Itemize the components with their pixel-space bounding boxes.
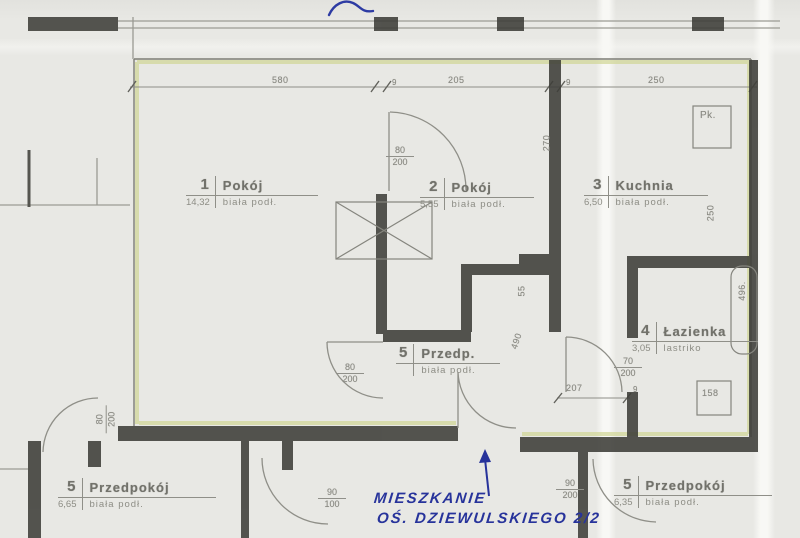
dim-158: 158 [702,388,719,398]
dim-door-hall-width: 80 [336,362,364,373]
kitchen-floor: biała podł. [609,196,709,208]
dim-door-bottom-mid-width: 90 [318,487,346,498]
bathroom-floor: lastriko [657,342,759,354]
dim-496: 496. [737,281,747,301]
kitchen-number: 3 [584,176,609,196]
dim-door-bath: 70 200 [614,356,642,379]
hall-number: 5 [396,344,414,364]
dim-207: 207 [566,383,583,393]
dim-door-left-width: 80 [95,405,106,433]
dim-tick-9b: 9 [566,78,571,87]
dim-door-bottom-mid-height: 100 [318,498,346,510]
dim-270: 270 [541,135,551,152]
room1-number: 1 [186,176,216,196]
annotation-arrow [479,449,491,496]
dim-door-hall: 80 200 [336,362,364,385]
dim-door-bottom-right-width: 90 [556,478,584,489]
pen-scribble [329,2,373,15]
floorplan-linework [0,0,800,538]
dim-door-room2: 80 200 [386,145,414,168]
dim-tick-9c: 9 [633,385,638,394]
dim-door-left: 80 200 [95,405,118,433]
kitchen-name: Kuchnia [609,176,709,196]
bathroom-area: 3,05 [632,342,657,354]
dim-55: 55 [517,285,527,296]
door-arcs [43,112,656,524]
dim-door-bottom-right-height: 200 [556,489,584,501]
dim-250-top: 250 [648,75,665,85]
dim-door-bottom-right: 90 200 [556,478,584,501]
dim-door-bath-width: 70 [614,356,642,367]
neighbor-right-area: 6,35 [614,496,639,508]
pantry-label: Pk. [700,110,716,121]
bathroom-number: 4 [632,322,657,342]
dim-door-hall-height: 200 [336,373,364,385]
bathroom-name: Łazienka [657,322,759,342]
bath-fixture-box [697,381,731,415]
neighbor-left-number: 5 [58,478,83,498]
room-label-hall: 5 Przedp. biała podł. [396,344,500,376]
room2-name: Pokój [445,178,535,198]
dim-205: 205 [448,75,465,85]
floorplan-scan: 1 Pokój 14,32 biała podł. 2 Pokój 5,55 b… [0,0,800,538]
dim-250-kitchen: 250 [705,205,715,222]
room-label-2: 2 Pokój 5,55 biała podł. [420,178,534,210]
room1-area: 14,32 [186,196,216,208]
hall-name: Przedp. [414,344,500,364]
room1-name: Pokój [216,176,318,196]
dim-door-room2-width: 80 [386,145,414,156]
room2-number: 2 [420,178,445,198]
neighbor-right-name: Przedpokój [639,476,773,496]
neighbor-left-area: 6,65 [58,498,83,510]
kitchen-area: 6,50 [584,196,609,208]
hall-area [396,364,414,376]
apartment-boundary-lines [134,59,751,437]
dim-door-room2-height: 200 [386,156,414,168]
annotation-line2: OŚ. DZIEWULSKIEGO 2/2 [376,510,601,527]
dim-580: 580 [272,75,289,85]
room2-floor: biała podł. [445,198,535,210]
room-label-bathroom: 4 Łazienka 3,05 lastriko [632,322,758,354]
room1-floor: biała podł. [216,196,318,208]
neighbor-right-number: 5 [614,476,639,496]
dim-door-bath-height: 200 [614,367,642,379]
annotation-line1: MIESZKANIE [373,490,487,507]
dim-tick-9a: 9 [392,78,397,87]
dim-door-left-height: 200 [106,405,118,433]
apartment-highlight [137,62,749,434]
neighbor-left-name: Przedpokój [83,478,217,498]
dim-door-bottom-mid: 90 100 [318,487,346,510]
room-label-neighbor-right: 5 Przedpokój 6,35 biała podł. [614,476,772,508]
neighbor-left-floor: biała podł. [83,498,217,510]
room-label-1: 1 Pokój 14,32 biała podł. [186,176,318,208]
hall-floor: biała podł. [414,364,500,376]
room-label-kitchen: 3 Kuchnia 6,50 biała podł. [584,176,708,208]
neighbor-right-floor: biała podł. [639,496,773,508]
room-label-neighbor-left: 5 Przedpokój 6,65 biała podł. [58,478,216,510]
room2-area: 5,55 [420,198,445,210]
arrowhead-icon [479,449,491,463]
